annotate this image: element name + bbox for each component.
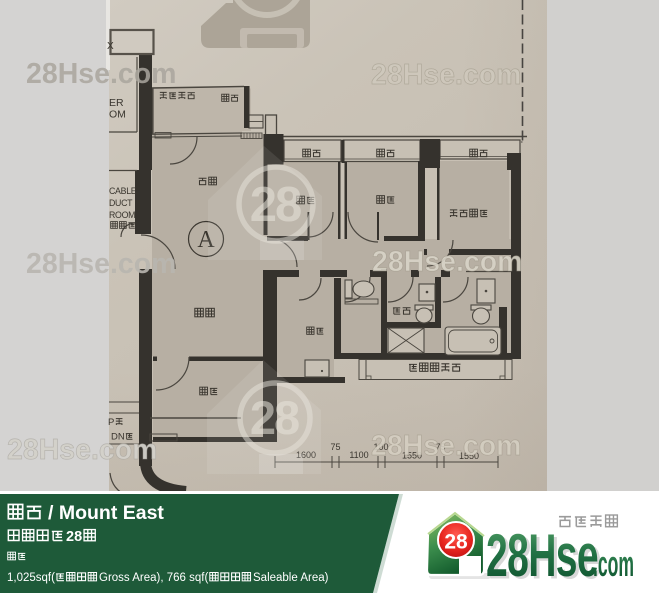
svg-text:1,025sqf(: 1,025sqf(	[7, 572, 55, 584]
svg-text:28: 28	[444, 531, 468, 554]
svg-text:28Hse.com: 28Hse.com	[371, 59, 521, 91]
svg-text:DUCT: DUCT	[109, 198, 133, 208]
svg-text:ER: ER	[109, 97, 124, 109]
svg-text:28: 28	[250, 391, 299, 444]
svg-text:P: P	[108, 417, 114, 428]
svg-text:28Hse.com: 28Hse.com	[26, 58, 176, 90]
svg-text:ROOM: ROOM	[109, 210, 135, 220]
svg-text:28Hse.com: 28Hse.com	[371, 430, 521, 462]
svg-text:X: X	[107, 41, 114, 52]
svg-text:OM: OM	[109, 109, 126, 121]
svg-text:CABLE: CABLE	[109, 186, 137, 196]
svg-text:Gross Area), 766 sqf(: Gross Area), 766 sqf(	[99, 572, 208, 584]
svg-text:Saleable Area): Saleable Area)	[253, 572, 329, 584]
svg-text:28: 28	[66, 529, 82, 545]
svg-text:28Hse.com: 28Hse.com	[372, 246, 522, 278]
svg-text:.com: .com	[593, 543, 634, 584]
svg-text:/ Mount East: / Mount East	[48, 502, 164, 524]
svg-text:28Hse.com: 28Hse.com	[7, 434, 157, 466]
svg-text:1100: 1100	[349, 450, 368, 460]
svg-text:28Hse.com: 28Hse.com	[26, 248, 176, 280]
svg-text:75: 75	[330, 442, 340, 452]
svg-text:28Hse: 28Hse	[486, 522, 598, 589]
svg-text:28: 28	[250, 178, 301, 232]
